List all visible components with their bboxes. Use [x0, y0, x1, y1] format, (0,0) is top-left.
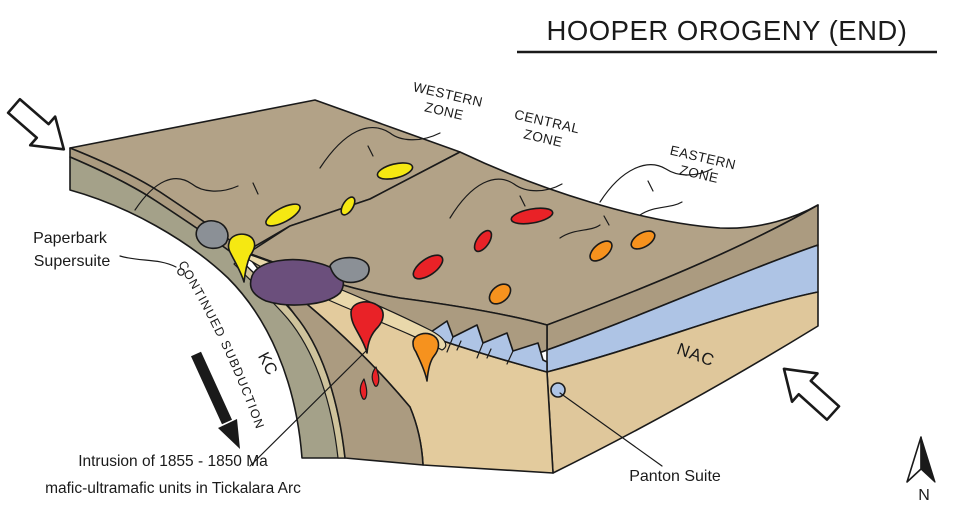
paperbark-label-line2: Supersuite [34, 253, 111, 270]
zone-label-central: CENTRAL ZONE [509, 107, 581, 153]
compression-arrow-right-icon [771, 355, 845, 427]
north-label: N [918, 487, 930, 504]
diagram-canvas: HOOPER OROGENY (END) WESTERN ZONE CENTRA… [0, 0, 960, 515]
zone-label-eastern: EASTERN ZONE [665, 143, 738, 189]
compression-arrow-left-icon [2, 92, 77, 164]
intrusion-caption-line2: mafic-ultramafic units in Tickalara Arc [45, 480, 301, 497]
hooper-orogeny-diagram: HOOPER OROGENY (END) WESTERN ZONE CENTRA… [0, 0, 960, 515]
gray-body-trench [196, 221, 228, 249]
zone-label-western: WESTERN ZONE [408, 79, 484, 126]
paperbark-label: Paperbark [33, 230, 108, 247]
intrusion-caption-line1: Intrusion of 1855 - 1850 Ma [78, 453, 268, 470]
north-arrow-icon [907, 437, 935, 482]
kc-label: KC [254, 349, 281, 378]
paperbark-leader-line [120, 256, 176, 267]
panton-suite-label: Panton Suite [629, 468, 721, 485]
diagram-title: HOOPER OROGENY (END) [547, 15, 908, 46]
